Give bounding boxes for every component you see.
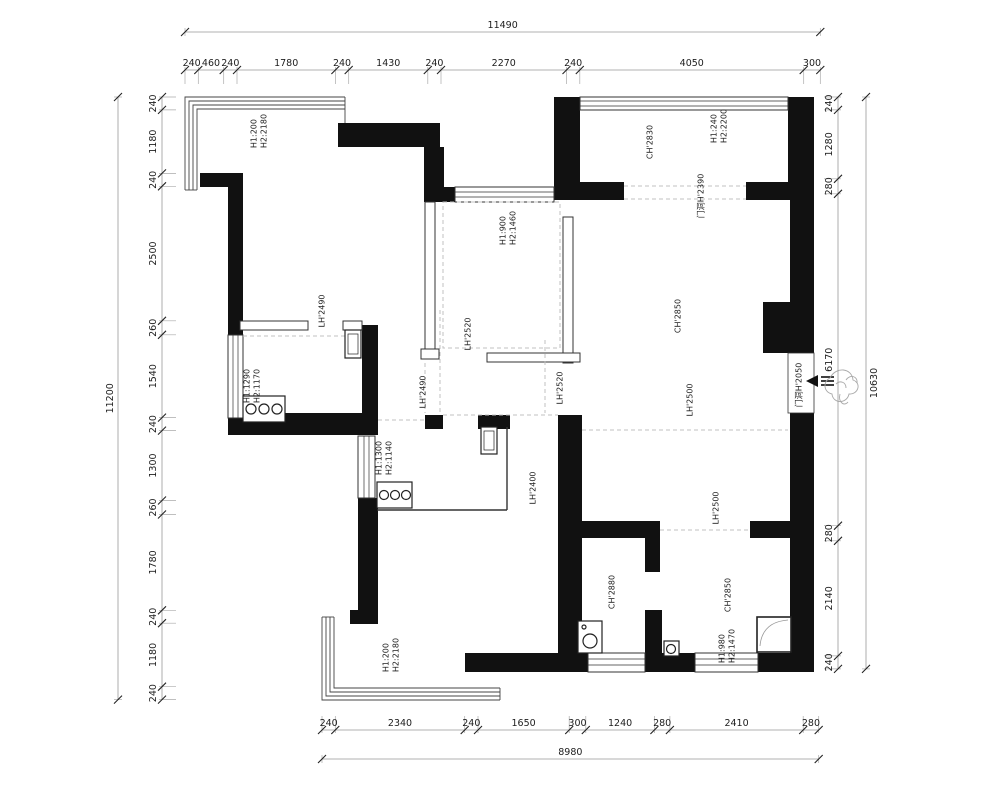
dim-label: 10630 [869, 368, 880, 398]
dim-label: 11490 [488, 20, 518, 31]
floor-drain [664, 641, 679, 656]
sink-island [481, 427, 497, 454]
dim-label: 1780 [274, 58, 298, 69]
dim-label: 240 [564, 58, 582, 69]
label-window-mid-top: H1:900 H2:1460 [499, 211, 518, 245]
stove-island [377, 482, 412, 508]
dim-label: 6170 [824, 348, 835, 372]
dim-label: 1780 [148, 550, 159, 574]
dim-label: 280 [824, 177, 835, 195]
label-window-bedroom2: H1:980 H2:1470 [718, 629, 737, 663]
label-line: H2:1140 [384, 441, 394, 475]
dim-label: 4050 [680, 58, 704, 69]
dim-label: 1180 [148, 643, 159, 667]
dim-label: 260 [148, 498, 159, 516]
walls [200, 97, 814, 672]
label-line: LH'2500 [685, 383, 695, 416]
floor-plan-canvas: 2404602401780240143024022702404050300240… [0, 0, 1000, 797]
label-line: LH'2490 [418, 375, 428, 408]
label-line: H2:2180 [391, 638, 401, 672]
partition-walls [240, 202, 580, 363]
plant-icon [825, 370, 858, 404]
dim-label: 11200 [105, 383, 116, 413]
dim-label: 240 [824, 653, 835, 671]
label-line: LH'2500 [711, 491, 721, 524]
dim-label: 240 [148, 171, 159, 189]
dim-label: 1430 [376, 58, 400, 69]
dim-label: 240 [824, 94, 835, 112]
label-lh-dining-left: LH'2490 [418, 375, 428, 408]
label-ceiling-bathroom: CH'2880 [607, 575, 617, 609]
dim-label: 2140 [824, 586, 835, 610]
dim-label: 1300 [148, 453, 159, 477]
label-line: H1:200 [250, 114, 260, 148]
label-line: CH'2850 [723, 578, 733, 612]
label-line: CH'2850 [673, 299, 683, 333]
dim-label: 1240 [608, 718, 632, 729]
dim-label: 1180 [148, 130, 159, 154]
label-line: LH'2520 [463, 317, 473, 350]
label-ceiling-living: CH'2850 [673, 299, 683, 333]
dim-label: 240 [148, 684, 159, 702]
label-line: LH'2490 [317, 294, 327, 327]
dim-label: 240 [320, 718, 338, 729]
label-lh-mid-room: LH'2520 [463, 317, 473, 350]
washing-machine [578, 621, 602, 653]
label-line: LH'2400 [528, 471, 538, 504]
label-lh-kitchen: LH'2400 [528, 471, 538, 504]
label-line: CH'2880 [607, 575, 617, 609]
label-line: H1:900 [499, 211, 509, 245]
label-line: H1:1290 [243, 369, 253, 403]
dim-label: 2270 [492, 58, 516, 69]
dim-label: 240 [221, 58, 239, 69]
label-line: 门洞H'2050 [794, 363, 804, 408]
dim-label: 280 [824, 524, 835, 542]
label-line: 门洞H'2390 [696, 174, 706, 219]
dim-label: 1280 [824, 132, 835, 156]
dim-label: 300 [803, 58, 821, 69]
label-line: H1:980 [718, 629, 728, 663]
dim-label: 240 [333, 58, 351, 69]
label-bay-window-bl: H1:200 H2:2180 [382, 638, 401, 672]
dim-label: 240 [148, 415, 159, 433]
label-window-left-mid: H1:1300 H2:1140 [375, 441, 394, 475]
label-ceiling-top-right: CH'2830 [645, 125, 655, 159]
label-line: H2:1170 [252, 369, 262, 403]
dim-label: 260 [148, 319, 159, 337]
label-line: H2:2180 [259, 114, 269, 148]
dim-label: 1540 [148, 364, 159, 388]
dim-label: 280 [653, 718, 671, 729]
fixtures [243, 330, 791, 656]
label-lh-living: LH'2500 [685, 383, 695, 416]
label-window-kitchen: H1:1290 H2:1170 [243, 369, 262, 403]
dim-label: 240 [148, 608, 159, 626]
shower-tray [757, 617, 791, 652]
label-window-top-right: H1:240 H2:2200 [710, 109, 729, 143]
label-ceiling-bedroom2: CH'2850 [723, 578, 733, 612]
label-lh-hallway: LH'2500 [711, 491, 721, 524]
label-line: H1:1300 [375, 441, 385, 475]
label-line: H2:1470 [727, 629, 737, 663]
label-door-entry: 门洞H'2050 [794, 363, 804, 408]
label-lh-bedroom1: LH'2490 [317, 294, 327, 327]
label-lh-dining-right: LH'2520 [555, 371, 565, 404]
dim-label: 8980 [558, 747, 582, 758]
dim-label: 240 [462, 718, 480, 729]
label-line: LH'2520 [555, 371, 565, 404]
dim-label: 460 [202, 58, 220, 69]
label-line: H2:2200 [719, 109, 729, 143]
dim-label: 1650 [512, 718, 536, 729]
label-door-top-right: 门洞H'2390 [696, 174, 706, 219]
dim-label: 240 [148, 94, 159, 112]
dim-label: 300 [568, 718, 586, 729]
label-line: H1:240 [710, 109, 720, 143]
dim-label: 2500 [148, 241, 159, 265]
sink-kitchen [345, 330, 361, 358]
label-bay-window-tl: H1:200 H2:2180 [250, 114, 269, 148]
dim-label: 2340 [388, 718, 412, 729]
dim-label: 2410 [724, 718, 748, 729]
dim-label: 240 [183, 58, 201, 69]
plan-drawing: 2404602401780240143024022702404050300240… [0, 0, 1000, 797]
label-line: H1:200 [382, 638, 392, 672]
label-line: H2:1460 [508, 211, 518, 245]
dim-label: 280 [802, 718, 820, 729]
dim-label: 240 [425, 58, 443, 69]
label-line: CH'2830 [645, 125, 655, 159]
